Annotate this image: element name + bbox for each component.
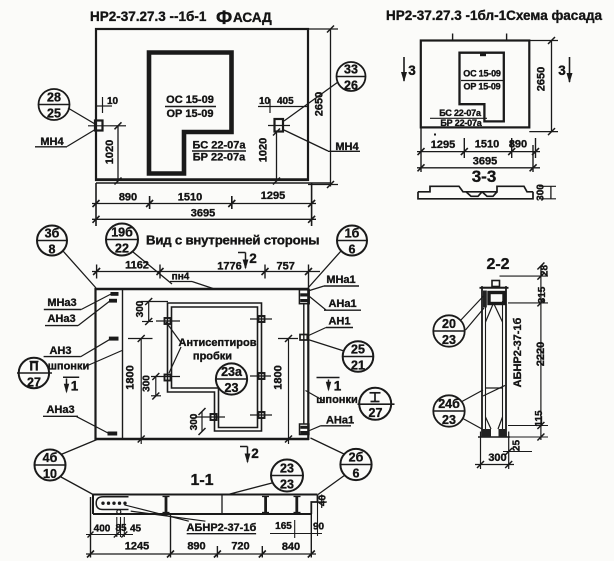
svg-text:757: 757 <box>277 261 295 273</box>
svg-text:10: 10 <box>43 467 57 481</box>
svg-text:2: 2 <box>251 446 259 461</box>
svg-text:БР 22-07а: БР 22-07а <box>440 118 482 128</box>
svg-text:БР 22-07а: БР 22-07а <box>193 152 246 164</box>
svg-text:1020: 1020 <box>104 140 116 164</box>
svg-text:90: 90 <box>313 522 325 533</box>
svg-text:АН3: АН3 <box>49 345 71 357</box>
svg-text:3: 3 <box>558 63 566 78</box>
svg-text:АН1: АН1 <box>328 316 350 328</box>
svg-text:ОС 15-09: ОС 15-09 <box>166 94 214 106</box>
svg-text:28: 28 <box>47 91 61 105</box>
svg-text:АБНР2-37-1б: АБНР2-37-1б <box>187 522 257 534</box>
svg-text:1800: 1800 <box>273 365 285 389</box>
svg-text:25: 25 <box>47 107 61 121</box>
svg-text:1б: 1б <box>345 227 360 241</box>
svg-text:пробки: пробки <box>193 351 232 363</box>
svg-text:6: 6 <box>349 243 356 257</box>
svg-text:2-2: 2-2 <box>486 256 509 273</box>
svg-text:ОР 15-09: ОР 15-09 <box>166 108 213 120</box>
svg-text:300: 300 <box>135 300 146 317</box>
svg-text:3б: 3б <box>45 227 60 241</box>
svg-text:НР2-37.27.3 --1б-1: НР2-37.27.3 --1б-1 <box>90 9 207 24</box>
svg-text:45: 45 <box>130 524 142 535</box>
svg-text:1510: 1510 <box>475 139 499 151</box>
svg-text:40: 40 <box>318 495 329 507</box>
svg-text:85: 85 <box>115 523 127 534</box>
svg-text:25: 25 <box>351 343 365 357</box>
svg-text:300: 300 <box>536 184 547 201</box>
svg-text:300: 300 <box>488 452 506 464</box>
svg-text:315: 315 <box>537 286 548 303</box>
svg-text:405: 405 <box>277 96 294 107</box>
svg-text:20: 20 <box>442 317 456 331</box>
svg-text:22: 22 <box>115 242 129 256</box>
svg-text:1-1: 1-1 <box>190 472 213 489</box>
svg-text:2: 2 <box>249 251 257 266</box>
svg-text:1776: 1776 <box>217 261 241 273</box>
svg-text:890: 890 <box>509 139 527 151</box>
svg-text:27: 27 <box>27 376 41 390</box>
svg-text:2220: 2220 <box>535 342 547 366</box>
svg-text:АСАД: АСАД <box>233 10 272 25</box>
svg-text:Антисептиров: Антисептиров <box>179 337 257 349</box>
svg-text:АБНР2-37-1б: АБНР2-37-1б <box>512 317 524 387</box>
svg-text:БС 22-07а: БС 22-07а <box>439 108 482 118</box>
svg-text:шпонки: шпонки <box>48 361 89 373</box>
svg-text:23: 23 <box>280 478 294 492</box>
svg-text:1295: 1295 <box>431 139 455 151</box>
svg-text:1: 1 <box>71 379 79 394</box>
svg-text:1245: 1245 <box>125 541 149 553</box>
svg-text:8: 8 <box>49 243 56 257</box>
svg-text:АНа1: АНа1 <box>326 415 354 427</box>
svg-text:300: 300 <box>189 413 200 430</box>
svg-text:165: 165 <box>275 521 292 532</box>
svg-text:840: 840 <box>282 541 300 553</box>
svg-text:1510: 1510 <box>178 192 202 204</box>
svg-text:23: 23 <box>442 333 456 347</box>
svg-text:3: 3 <box>408 63 416 78</box>
svg-text:ОС 15-09: ОС 15-09 <box>463 69 501 79</box>
svg-text:2650: 2650 <box>536 67 548 91</box>
svg-text:890: 890 <box>119 192 137 204</box>
svg-text:21: 21 <box>351 359 365 373</box>
svg-text:19б: 19б <box>111 226 133 240</box>
svg-text:Ф: Ф <box>216 8 232 29</box>
svg-text:23: 23 <box>442 413 456 427</box>
svg-text:10: 10 <box>107 96 119 107</box>
svg-text:115: 115 <box>534 410 545 427</box>
svg-text:3-3: 3-3 <box>472 167 497 186</box>
svg-text:28: 28 <box>540 265 551 277</box>
svg-text:23: 23 <box>280 462 294 476</box>
svg-text:АНа3: АНа3 <box>47 313 75 325</box>
svg-text:2б: 2б <box>349 451 364 465</box>
svg-text:МНа3: МНа3 <box>47 297 76 309</box>
svg-text:АНа3: АНа3 <box>46 404 74 416</box>
svg-text:300: 300 <box>142 375 153 392</box>
svg-text:720: 720 <box>231 541 249 553</box>
svg-text:1162: 1162 <box>125 260 149 272</box>
svg-text:3695: 3695 <box>473 156 497 168</box>
svg-text:33: 33 <box>344 63 358 77</box>
svg-text:Вид с внутренней стороны: Вид с внутренней стороны <box>146 233 319 248</box>
svg-text:24б: 24б <box>438 397 460 411</box>
svg-text:26: 26 <box>344 79 358 93</box>
svg-text:890: 890 <box>187 541 205 553</box>
svg-text:4б: 4б <box>43 451 58 465</box>
svg-text:1: 1 <box>334 379 342 394</box>
svg-text:10: 10 <box>259 96 271 107</box>
svg-text:1295: 1295 <box>261 190 285 202</box>
svg-text:23: 23 <box>225 381 239 395</box>
svg-text:25: 25 <box>512 440 523 452</box>
svg-text:БС 22-07а: БС 22-07а <box>192 140 246 152</box>
svg-text:3695: 3695 <box>191 208 215 220</box>
svg-text:400: 400 <box>94 524 111 535</box>
svg-text:1020: 1020 <box>258 138 270 162</box>
svg-text:1800: 1800 <box>125 365 137 389</box>
svg-text:НР2-37.27.3 -1бл-1Схема фасада: НР2-37.27.3 -1бл-1Схема фасада <box>386 8 603 23</box>
svg-text:ОР 15-09: ОР 15-09 <box>464 82 501 92</box>
svg-text:27: 27 <box>369 406 383 420</box>
svg-text:МНа1: МНа1 <box>326 274 355 286</box>
svg-text:6: 6 <box>353 467 360 481</box>
svg-text:АНа1: АНа1 <box>328 298 356 310</box>
svg-text:23а: 23а <box>221 365 243 379</box>
